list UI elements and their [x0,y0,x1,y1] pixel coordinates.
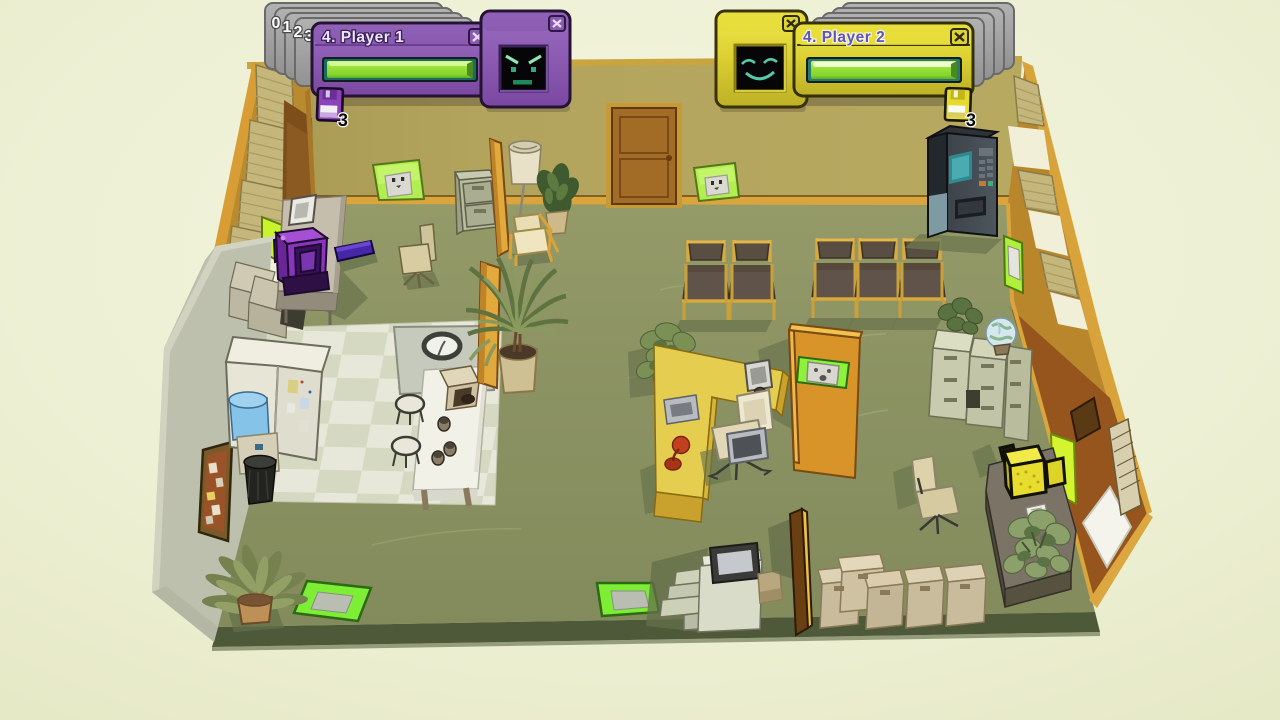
svg-text:1: 1 [283,19,292,36]
svg-text:3: 3 [966,110,977,130]
svg-text:2: 2 [294,24,303,41]
svg-text:0: 0 [272,15,281,32]
svg-text:4. Player 1: 4. Player 1 [322,29,404,46]
svg-text:3: 3 [338,110,349,130]
svg-text:4. Player 2: 4. Player 2 [803,29,885,46]
